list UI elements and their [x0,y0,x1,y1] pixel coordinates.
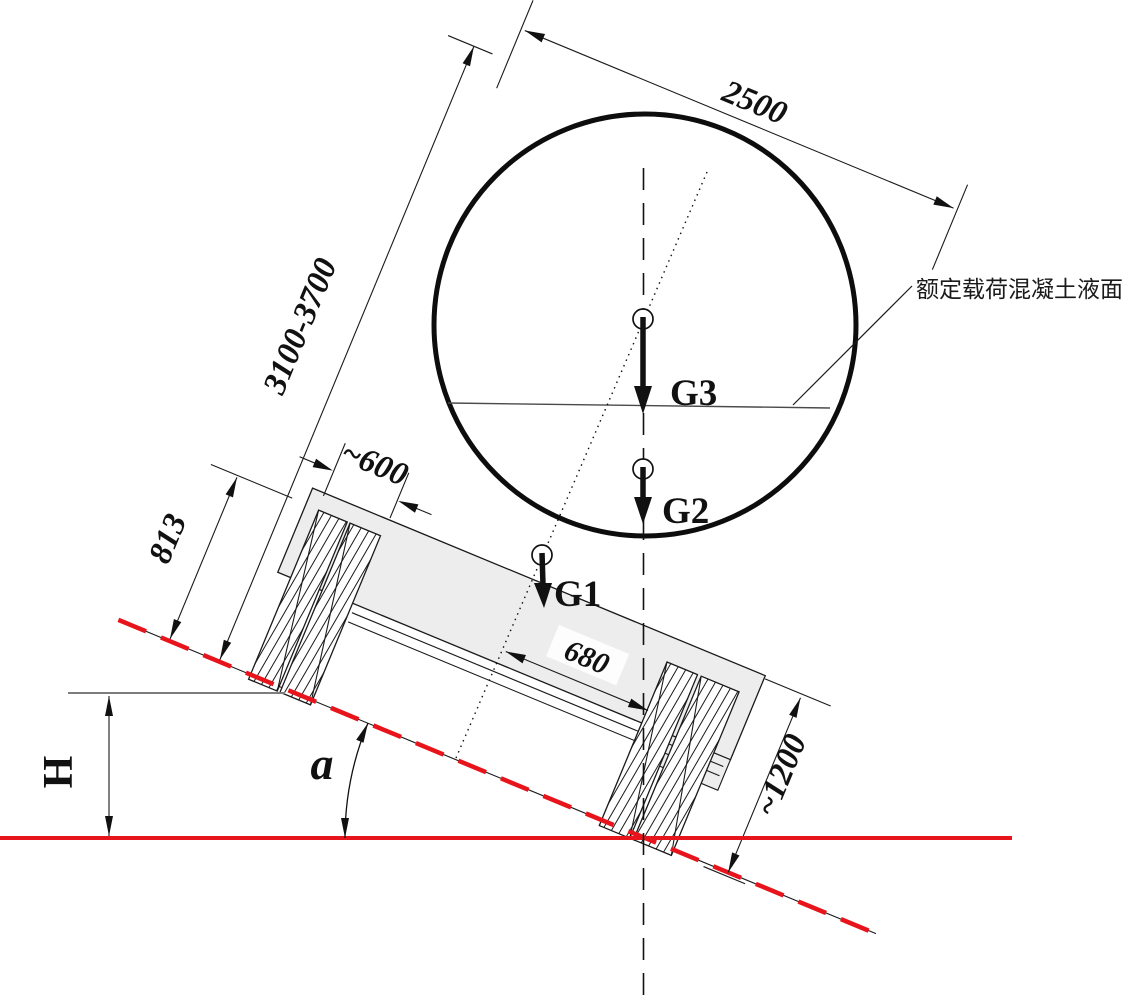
force-label-g1: G1 [554,574,601,615]
angle-label: a [311,738,334,789]
diagram-stage: ~600 813 3100-3700 2500 [0,0,1129,1005]
force-label-g2: G2 [662,491,709,532]
height-label: H [36,756,82,789]
liquid-surface-note: 额定载荷混凝土液面 [916,277,1123,303]
mixer-tilt-dimension-drawing: ~600 813 3100-3700 2500 [0,0,1129,1005]
force-label-g3: G3 [670,373,717,414]
background [0,0,1129,1005]
